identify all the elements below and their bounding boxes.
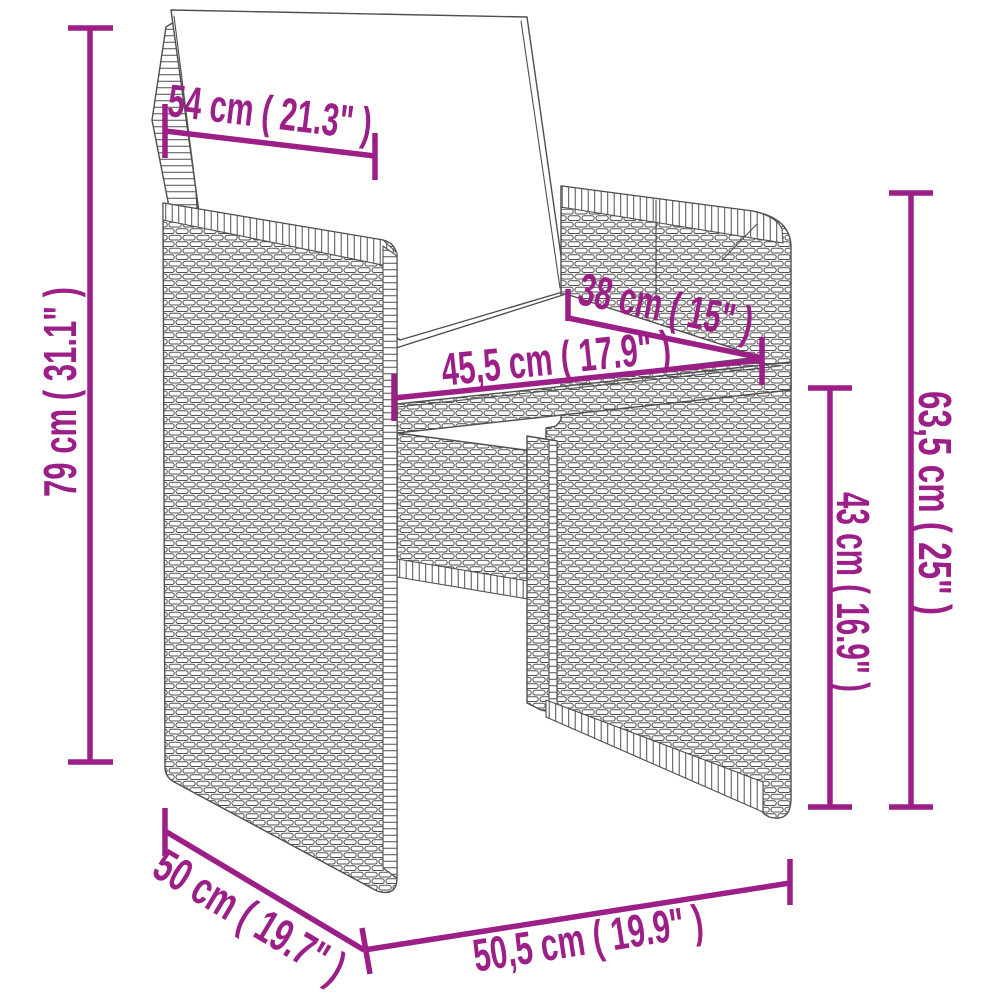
chair-dimension-diagram: 54 cm ( 21.3" ) 79 cm ( 31.1" ) 38 cm ( …	[0, 0, 1000, 1000]
left-panel-edge-roll	[383, 246, 397, 878]
dim-overall-height: 79 cm ( 31.1" )	[34, 28, 113, 762]
dim-label-overall-width: 50,5 cm ( 19.9" )	[469, 894, 706, 981]
dim-overall-width: 50,5 cm ( 19.9" )	[364, 859, 790, 982]
back-right-leg-roll	[549, 440, 557, 712]
dim-label-seat-height: 43 cm ( 16.9" )	[827, 492, 879, 692]
left-side-panel	[163, 203, 397, 892]
dim-label-armrest-height: 63,5 cm ( 25" )	[909, 391, 961, 615]
dim-seat-height: 43 cm ( 16.9" )	[808, 388, 879, 807]
dim-armrest-height: 63,5 cm ( 25" )	[889, 193, 961, 807]
diagram-canvas: 54 cm ( 21.3" ) 79 cm ( 31.1" ) 38 cm ( …	[0, 0, 1000, 1000]
dim-label-overall-height: 79 cm ( 31.1" )	[34, 287, 86, 497]
